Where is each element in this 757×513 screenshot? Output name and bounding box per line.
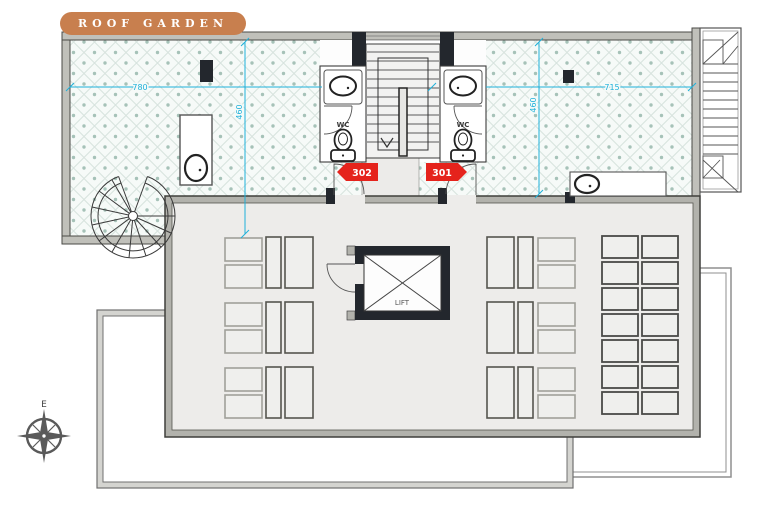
column <box>200 60 213 82</box>
furniture-rect <box>285 367 313 418</box>
furniture-rect <box>602 366 638 388</box>
furniture-rect <box>642 288 678 310</box>
wc-right: WC <box>440 66 486 162</box>
furniture-rect <box>225 368 262 391</box>
column <box>440 32 454 68</box>
compass-rose: E <box>17 400 71 463</box>
dim-460-left: 460 <box>235 104 244 119</box>
dim-780: 780 <box>132 83 147 92</box>
sink-icon <box>450 77 476 96</box>
floor-plan-drawing: WC WC 302 301 <box>0 0 757 513</box>
furniture-rect <box>642 392 678 414</box>
furniture-rect <box>518 302 533 353</box>
central-stair <box>352 32 454 158</box>
column <box>563 70 574 83</box>
furniture-rect <box>225 238 262 261</box>
furniture-rect <box>487 237 514 288</box>
furniture-rect <box>602 392 638 414</box>
unit-301-label: 301 <box>432 168 452 179</box>
floor-plan: WC WC 302 301 <box>0 0 757 513</box>
furniture-rect <box>285 237 313 288</box>
wc-left-label: WC <box>337 121 350 129</box>
unit-302-label: 302 <box>352 168 372 179</box>
furniture-rect <box>642 262 678 284</box>
furniture-rect <box>538 368 575 391</box>
sink-icon <box>330 77 356 96</box>
furniture-rect <box>642 340 678 362</box>
exterior-stair <box>700 28 741 192</box>
stair-spine <box>399 88 407 156</box>
furniture-rect <box>602 288 638 310</box>
furniture-rect <box>642 366 678 388</box>
furniture-rect <box>602 314 638 336</box>
furniture-rect <box>538 238 575 261</box>
furniture-rect <box>538 265 575 288</box>
furniture-rect <box>225 265 262 288</box>
furniture-rect <box>642 314 678 336</box>
door-opening <box>335 195 365 205</box>
basin-icon <box>185 155 207 181</box>
furniture-rect <box>538 303 575 326</box>
wc-right-label: WC <box>457 121 470 129</box>
furniture-rect <box>538 330 575 353</box>
dim-715: 715 <box>604 83 619 92</box>
door-opening <box>446 195 476 205</box>
furniture-rect <box>266 367 281 418</box>
furniture-rect <box>285 302 313 353</box>
dim-460-right: 460 <box>529 97 538 112</box>
furniture-rect <box>538 395 575 418</box>
lift-label: LIFT <box>395 299 410 307</box>
wc-left: WC <box>320 66 366 162</box>
furniture-rect <box>266 237 281 288</box>
furniture-rect <box>225 395 262 418</box>
basin-icon <box>575 175 599 193</box>
wall <box>62 40 70 244</box>
furniture-rect <box>225 330 262 353</box>
compass-label: E <box>41 400 47 410</box>
furniture-rect <box>487 367 514 418</box>
roof-garden-label: ROOF GARDEN <box>60 12 246 35</box>
furniture-rect <box>602 340 638 362</box>
furniture-rect <box>642 236 678 258</box>
furniture-rect <box>602 262 638 284</box>
furniture-rect <box>225 303 262 326</box>
furniture-rect <box>518 367 533 418</box>
furniture-rect <box>487 302 514 353</box>
wall <box>692 28 700 198</box>
furniture-rect <box>602 236 638 258</box>
column <box>438 188 447 204</box>
furniture-rect <box>518 237 533 288</box>
furniture-rect <box>266 302 281 353</box>
column <box>352 32 366 68</box>
